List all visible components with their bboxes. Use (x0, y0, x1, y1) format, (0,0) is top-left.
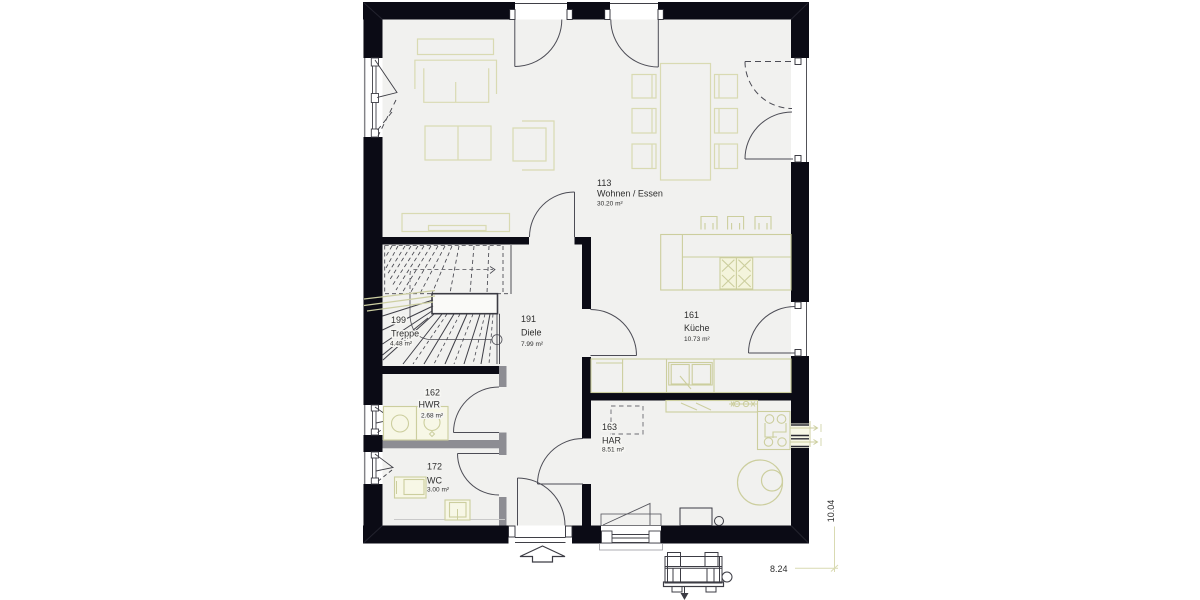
svg-text:HAR: HAR (602, 436, 622, 446)
svg-text:HWR: HWR (419, 400, 441, 410)
svg-text:172: 172 (427, 462, 442, 472)
svg-text:7.99 m²: 7.99 m² (521, 341, 544, 348)
svg-text:161: 161 (684, 310, 699, 320)
svg-text:WC: WC (427, 476, 442, 486)
svg-text:191: 191 (521, 314, 536, 324)
svg-text:199: 199 (391, 315, 406, 325)
svg-text:162: 162 (425, 388, 440, 398)
svg-text:163: 163 (602, 422, 617, 432)
svg-text:30.20 m²: 30.20 m² (597, 201, 623, 208)
svg-text:Wohnen / Essen: Wohnen / Essen (597, 189, 663, 199)
svg-text:113: 113 (597, 178, 611, 188)
svg-text:10.04: 10.04 (826, 500, 836, 523)
svg-text:10.73 m²: 10.73 m² (684, 336, 710, 343)
svg-text:4.48 m²: 4.48 m² (390, 341, 413, 348)
svg-text:Treppe: Treppe (391, 329, 419, 339)
svg-text:Küche: Küche (684, 323, 710, 333)
svg-text:8.51 m²: 8.51 m² (602, 447, 625, 454)
svg-text:2.68 m²: 2.68 m² (421, 413, 444, 420)
svg-text:Diele: Diele (521, 328, 542, 338)
svg-text:8.24: 8.24 (770, 564, 788, 574)
svg-text:3.00 m²: 3.00 m² (427, 487, 450, 494)
